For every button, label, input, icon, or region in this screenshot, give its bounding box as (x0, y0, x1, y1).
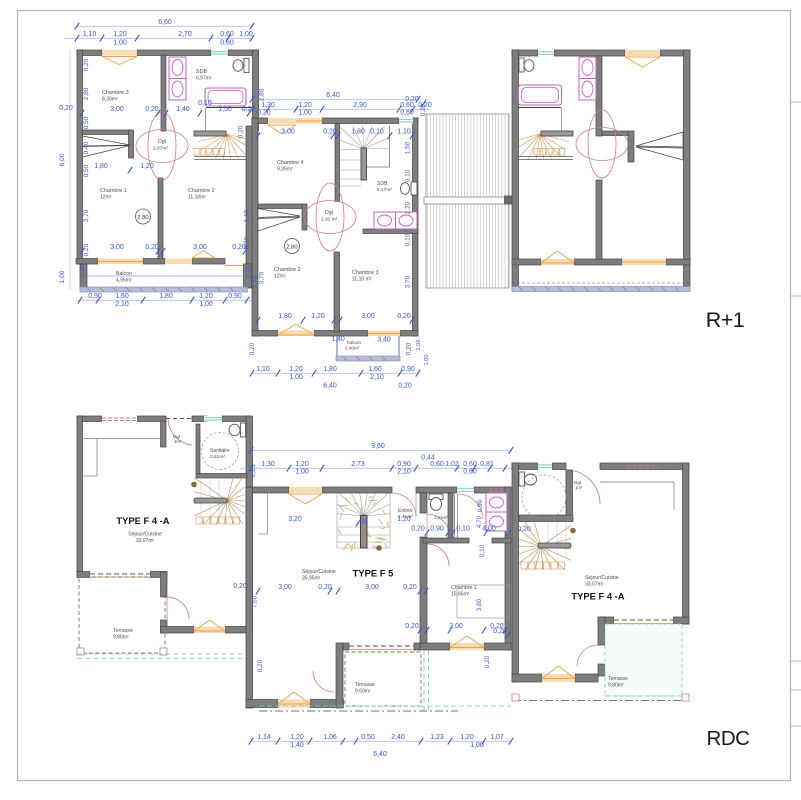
svg-text:0,20: 0,20 (249, 342, 256, 355)
svg-text:3,70: 3,70 (259, 271, 266, 284)
svg-text:1,00: 1,00 (289, 374, 303, 381)
svg-text:0,50: 0,50 (83, 164, 90, 177)
svg-text:0,20: 0,20 (59, 105, 73, 112)
svg-text:0,20: 0,20 (405, 96, 419, 103)
svg-text:0,20: 0,20 (83, 243, 90, 256)
svg-text:0,20: 0,20 (406, 342, 413, 355)
svg-text:1,00: 1,00 (199, 301, 213, 308)
svg-text:1,80: 1,80 (323, 366, 337, 373)
svg-text:0,20: 0,20 (79, 264, 86, 277)
svg-text:2,10: 2,10 (115, 301, 129, 308)
svg-text:1,20: 1,20 (311, 313, 325, 320)
svg-text:0,60: 0,60 (400, 102, 414, 109)
svg-text:1,10: 1,10 (244, 209, 251, 222)
svg-text:3,00: 3,00 (110, 106, 124, 113)
svg-text:0,20: 0,20 (403, 584, 417, 591)
svg-text:1,10: 1,10 (397, 129, 411, 136)
svg-text:2,10: 2,10 (397, 469, 411, 476)
svg-text:12m²: 12m² (100, 195, 112, 201)
svg-text:33,07m²: 33,07m² (136, 538, 155, 544)
svg-text:Terrasse: Terrasse (355, 682, 375, 688)
svg-text:1,20: 1,20 (140, 163, 154, 170)
svg-text:33,07m²: 33,07m² (585, 582, 604, 588)
svg-text:1m²: 1m² (174, 439, 182, 444)
svg-text:1,02: 1,02 (445, 461, 459, 468)
svg-text:TYPE F 5: TYPE F 5 (353, 568, 394, 579)
svg-text:0,50: 0,50 (83, 116, 90, 129)
svg-text:0,20: 0,20 (323, 129, 337, 136)
svg-text:0,60: 0,60 (430, 461, 444, 468)
svg-text:Balcon: Balcon (116, 271, 132, 277)
svg-text:1,60: 1,60 (368, 366, 382, 373)
svg-text:0,90: 0,90 (228, 293, 242, 300)
svg-text:0,20: 0,20 (411, 526, 425, 533)
svg-text:1,20: 1,20 (199, 293, 213, 300)
svg-text:Terrasse: Terrasse (113, 628, 133, 634)
svg-text:1,53m²: 1,53m² (434, 515, 448, 520)
svg-text:1,30: 1,30 (261, 102, 275, 109)
svg-text:8,00: 8,00 (59, 153, 66, 166)
svg-text:Chambre 3: Chambre 3 (352, 270, 379, 276)
svg-text:2,80: 2,80 (83, 87, 90, 100)
svg-text:0,90: 0,90 (88, 293, 102, 300)
svg-text:1,00: 1,00 (239, 31, 253, 38)
svg-text:0,20: 0,20 (233, 583, 247, 590)
svg-text:1,20: 1,20 (397, 516, 411, 523)
svg-text:2,80: 2,80 (286, 245, 297, 251)
svg-text:1,00: 1,00 (424, 354, 430, 365)
svg-text:2,20: 2,20 (405, 201, 412, 214)
svg-text:0,10: 0,10 (479, 544, 486, 557)
svg-text:1,10: 1,10 (256, 366, 270, 373)
svg-text:0,20: 0,20 (244, 236, 251, 249)
svg-text:12m²: 12m² (274, 274, 286, 280)
svg-text:6,17m²: 6,17m² (377, 187, 392, 193)
svg-text:9,60: 9,60 (371, 443, 385, 450)
svg-text:0,20: 0,20 (83, 58, 90, 71)
svg-text:15,85m²: 15,85m² (451, 592, 470, 598)
svg-text:1,20: 1,20 (298, 102, 312, 109)
svg-text:3,70: 3,70 (253, 275, 260, 288)
svg-text:9,80m²: 9,80m² (113, 635, 129, 641)
svg-text:0,20: 0,20 (484, 655, 491, 668)
svg-text:1,80: 1,80 (94, 163, 108, 170)
svg-text:2,73: 2,73 (351, 461, 365, 468)
svg-text:1,07: 1,07 (490, 734, 504, 741)
svg-text:1,20: 1,20 (295, 461, 309, 468)
svg-text:TYPE F 4 -A: TYPE F 4 -A (571, 591, 624, 602)
svg-text:RDC: RDC (707, 727, 751, 750)
svg-text:3,70: 3,70 (83, 209, 90, 222)
svg-text:2,92 m²: 2,92 m² (321, 217, 338, 223)
svg-text:6,40: 6,40 (323, 383, 337, 390)
svg-text:1,80: 1,80 (278, 313, 292, 320)
svg-text:1,00: 1,00 (295, 469, 309, 476)
svg-text:SDB: SDB (377, 181, 388, 187)
svg-text:2,80: 2,80 (137, 215, 148, 221)
svg-text:Chambre 3: Chambre 3 (102, 90, 129, 96)
svg-text:0,60: 0,60 (463, 461, 477, 468)
svg-text:0,81: 0,81 (480, 461, 494, 468)
svg-text:1,10: 1,10 (83, 31, 97, 38)
svg-text:0,20: 0,20 (397, 313, 411, 320)
svg-text:Entrée: Entrée (398, 508, 413, 514)
svg-text:0,60: 0,60 (220, 40, 234, 47)
svg-text:1,06: 1,06 (416, 339, 422, 350)
svg-text:9,35m²: 9,35m² (277, 167, 293, 173)
svg-text:1,00: 1,00 (298, 110, 312, 117)
svg-text:3,00: 3,00 (281, 129, 295, 136)
svg-text:35,95m²: 35,95m² (302, 576, 321, 582)
svg-text:Chambre 2: Chambre 2 (274, 267, 301, 273)
svg-text:0,20: 0,20 (493, 628, 507, 635)
svg-text:6,40: 6,40 (373, 751, 387, 758)
svg-text:Séjour/Cuisine: Séjour/Cuisine (585, 575, 619, 581)
svg-text:2,40m²: 2,40m² (345, 346, 360, 351)
svg-text:0,60: 0,60 (400, 110, 414, 117)
svg-text:0,10: 0,10 (370, 129, 384, 136)
svg-text:0,50: 0,50 (361, 734, 375, 741)
svg-text:6,40: 6,40 (326, 92, 340, 99)
svg-text:1,14: 1,14 (257, 734, 271, 741)
svg-text:1,50: 1,50 (218, 106, 232, 113)
svg-text:3,80: 3,80 (476, 598, 483, 611)
svg-text:2,07m²: 2,07m² (153, 146, 168, 152)
svg-text:11,10m²: 11,10m² (188, 195, 206, 201)
svg-text:3,70: 3,70 (405, 275, 412, 288)
svg-text:4,96m²: 4,96m² (116, 278, 132, 284)
svg-text:9,60m²: 9,60m² (355, 689, 371, 695)
svg-text:3,00: 3,00 (278, 584, 292, 591)
svg-text:0,90: 0,90 (397, 461, 411, 468)
svg-text:3,61m²: 3,61m² (210, 454, 225, 460)
svg-text:0,10: 0,10 (456, 526, 470, 533)
svg-text:3,00: 3,00 (110, 244, 124, 251)
svg-text:Chambre 1: Chambre 1 (100, 188, 127, 194)
svg-text:3,20: 3,20 (288, 516, 302, 523)
svg-text:0,10: 0,10 (405, 233, 412, 246)
svg-text:Chambre 4: Chambre 4 (277, 160, 304, 166)
svg-text:1,30: 1,30 (261, 461, 275, 468)
svg-text:0,90: 0,90 (430, 526, 444, 533)
svg-text:Dgt: Dgt (325, 210, 334, 216)
svg-text:1,60: 1,60 (115, 293, 129, 300)
svg-text:Dgt: Dgt (158, 139, 167, 145)
svg-text:Chambre 2: Chambre 2 (188, 188, 215, 194)
svg-text:1,50: 1,50 (405, 141, 412, 154)
svg-text:0,60: 0,60 (463, 469, 477, 476)
svg-text:Séjour/Cuisine: Séjour/Cuisine (128, 532, 162, 538)
svg-text:1,06: 1,06 (323, 734, 337, 741)
svg-text:1,20: 1,20 (460, 734, 474, 741)
svg-text:0,20: 0,20 (238, 125, 245, 138)
svg-text:0,10: 0,10 (405, 169, 412, 182)
svg-text:1,40: 1,40 (290, 742, 304, 749)
svg-text:2,70: 2,70 (178, 31, 192, 38)
svg-text:0,20: 0,20 (398, 383, 412, 390)
svg-text:0,60: 0,60 (220, 31, 234, 38)
svg-text:Séjour/Cuisine: Séjour/Cuisine (302, 569, 336, 575)
svg-text:1,40: 1,40 (331, 336, 345, 343)
svg-text:6,60: 6,60 (158, 19, 172, 26)
svg-text:8,30m²: 8,30m² (102, 97, 118, 103)
svg-text:6,97m²: 6,97m² (196, 76, 212, 82)
svg-text:0,90: 0,90 (401, 366, 415, 373)
svg-text:4,70: 4,70 (476, 515, 483, 528)
svg-text:0,20: 0,20 (250, 464, 257, 477)
svg-text:0,10: 0,10 (198, 100, 212, 107)
svg-text:SDB: SDB (196, 69, 207, 75)
svg-text:1,00: 1,00 (113, 40, 127, 47)
svg-text:0,20: 0,20 (246, 265, 253, 278)
svg-text:0,20: 0,20 (318, 584, 332, 591)
svg-text:1,20: 1,20 (113, 31, 127, 38)
svg-text:1,00: 1,00 (59, 270, 66, 283)
svg-text:Sanitaire: Sanitaire (210, 448, 230, 454)
svg-text:2,10: 2,10 (370, 374, 384, 381)
svg-text:2,90: 2,90 (353, 102, 367, 109)
svg-text:0,40: 0,40 (83, 141, 90, 154)
svg-text:0,20: 0,20 (405, 623, 419, 630)
svg-text:R+1: R+1 (706, 308, 745, 332)
svg-text:1,20: 1,20 (289, 366, 303, 373)
svg-text:1m²: 1m² (575, 485, 583, 490)
svg-text:0,90: 0,90 (477, 499, 484, 512)
svg-text:TYPE F 4 -A: TYPE F 4 -A (116, 515, 169, 526)
svg-text:3,00: 3,00 (449, 623, 463, 630)
svg-text:7,60: 7,60 (252, 595, 259, 608)
svg-text:0,20: 0,20 (145, 244, 159, 251)
svg-text:4,00: 4,00 (482, 526, 496, 533)
svg-text:1,40: 1,40 (176, 106, 190, 113)
svg-text:0,20: 0,20 (257, 110, 271, 117)
svg-text:1,80: 1,80 (351, 129, 365, 136)
svg-text:1,80: 1,80 (159, 293, 173, 300)
svg-text:3,00: 3,00 (193, 244, 207, 251)
svg-text:1,20: 1,20 (290, 734, 304, 741)
svg-text:1,23: 1,23 (430, 734, 444, 741)
svg-text:3,00: 3,00 (361, 313, 375, 320)
svg-text:0,20: 0,20 (145, 106, 159, 113)
svg-text:2,40: 2,40 (391, 734, 405, 741)
svg-text:0,44: 0,44 (421, 455, 435, 462)
svg-text:9,80m²: 9,80m² (608, 683, 624, 689)
svg-text:Chambre 1: Chambre 1 (451, 585, 477, 591)
svg-text:3,00: 3,00 (365, 584, 379, 591)
svg-text:3,40: 3,40 (377, 337, 391, 344)
svg-text:0,20: 0,20 (257, 659, 264, 672)
svg-text:Terrasse: Terrasse (608, 676, 628, 682)
svg-text:1,00: 1,00 (470, 742, 484, 749)
svg-text:0,20: 0,20 (517, 526, 531, 533)
svg-text:11,10 m²: 11,10 m² (352, 277, 372, 283)
